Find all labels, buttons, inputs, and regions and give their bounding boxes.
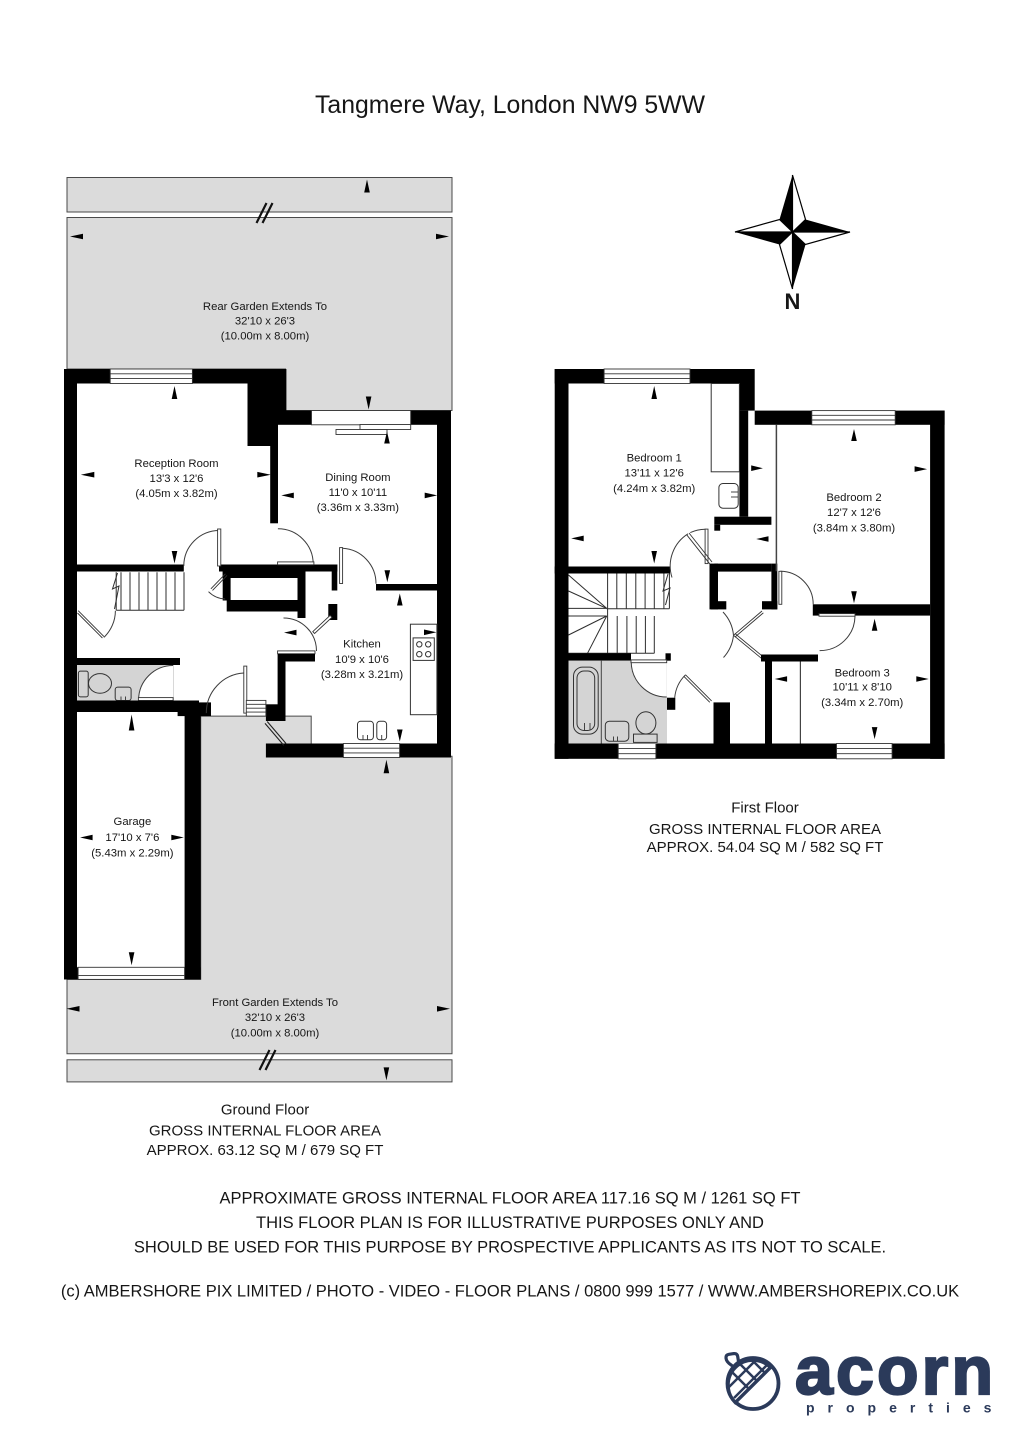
svg-text:APPROX. 54.04 SQ M / 582 SQ FT: APPROX. 54.04 SQ M / 582 SQ FT xyxy=(647,839,884,856)
svg-text:Front Garden Extends To: Front Garden Extends To xyxy=(212,997,338,1009)
svg-text:Bedroom 2: Bedroom 2 xyxy=(826,492,881,504)
svg-text:(4.05m x 3.82m): (4.05m x 3.82m) xyxy=(135,488,217,500)
svg-text:(c) AMBERSHORE PIX LIMITED / P: (c) AMBERSHORE PIX LIMITED / PHOTO - VID… xyxy=(61,1283,959,1301)
svg-text:13'3 x 12'6: 13'3 x 12'6 xyxy=(150,473,204,485)
svg-text:17'10 x 7'6: 17'10 x 7'6 xyxy=(105,832,159,844)
svg-text:acorn: acorn xyxy=(795,1333,992,1409)
svg-text:(3.84m x 3.80m): (3.84m x 3.80m) xyxy=(813,523,895,535)
svg-text:11'0 x 10'11: 11'0 x 10'11 xyxy=(329,487,388,499)
svg-text:12'7 x 12'6: 12'7 x 12'6 xyxy=(827,507,881,519)
svg-text:Ground Floor: Ground Floor xyxy=(221,1102,309,1119)
svg-text:(3.28m x 3.21m): (3.28m x 3.21m) xyxy=(321,669,403,681)
svg-text:(4.24m x 3.82m): (4.24m x 3.82m) xyxy=(613,483,695,495)
svg-text:(10.00m x 8.00m): (10.00m x 8.00m) xyxy=(231,1028,320,1040)
svg-text:GROSS INTERNAL FLOOR AREA: GROSS INTERNAL FLOOR AREA xyxy=(149,1123,381,1140)
svg-text:(3.36m x 3.33m): (3.36m x 3.33m) xyxy=(317,502,399,514)
svg-text:APPROX. 63.12 SQ M / 679 SQ FT: APPROX. 63.12 SQ M / 679 SQ FT xyxy=(147,1142,384,1159)
svg-text:(10.00m x 8.00m): (10.00m x 8.00m) xyxy=(221,330,310,342)
svg-text:32'10 x 26'3: 32'10 x 26'3 xyxy=(245,1012,305,1024)
svg-text:(5.43m x 2.29m): (5.43m x 2.29m) xyxy=(91,848,173,860)
svg-text:Kitchen: Kitchen xyxy=(343,639,381,651)
svg-text:APPROXIMATE GROSS INTERNAL FLO: APPROXIMATE GROSS INTERNAL FLOOR AREA 11… xyxy=(219,1190,800,1208)
svg-text:GROSS INTERNAL FLOOR AREA: GROSS INTERNAL FLOOR AREA xyxy=(649,821,881,838)
svg-text:Tangmere Way, London NW9 5WW: Tangmere Way, London NW9 5WW xyxy=(315,92,706,119)
svg-text:First Floor: First Floor xyxy=(731,800,799,817)
svg-text:Garage: Garage xyxy=(114,816,152,828)
svg-text:10'11 x 8'10: 10'11 x 8'10 xyxy=(833,682,892,694)
svg-text:32'10 x 26'3: 32'10 x 26'3 xyxy=(235,316,295,328)
svg-text:Dining Room: Dining Room xyxy=(325,472,390,484)
svg-text:Reception Room: Reception Room xyxy=(134,458,218,470)
svg-text:properties: properties xyxy=(806,1400,1004,1416)
svg-text:THIS FLOOR PLAN IS FOR ILLUSTR: THIS FLOOR PLAN IS FOR ILLUSTRATIVE PURP… xyxy=(256,1214,764,1232)
svg-text:Bedroom 1: Bedroom 1 xyxy=(627,452,682,464)
svg-text:SHOULD BE USED FOR THIS PURPOS: SHOULD BE USED FOR THIS PURPOSE BY PROSP… xyxy=(134,1238,886,1256)
svg-text:N: N xyxy=(785,289,801,314)
svg-text:(3.34m x 2.70m): (3.34m x 2.70m) xyxy=(821,697,903,709)
svg-text:Rear Garden Extends To: Rear Garden Extends To xyxy=(203,301,327,313)
svg-text:13'11 x 12'6: 13'11 x 12'6 xyxy=(625,468,684,480)
svg-text:10'9 x 10'6: 10'9 x 10'6 xyxy=(335,654,389,666)
svg-text:Bedroom 3: Bedroom 3 xyxy=(835,667,890,679)
